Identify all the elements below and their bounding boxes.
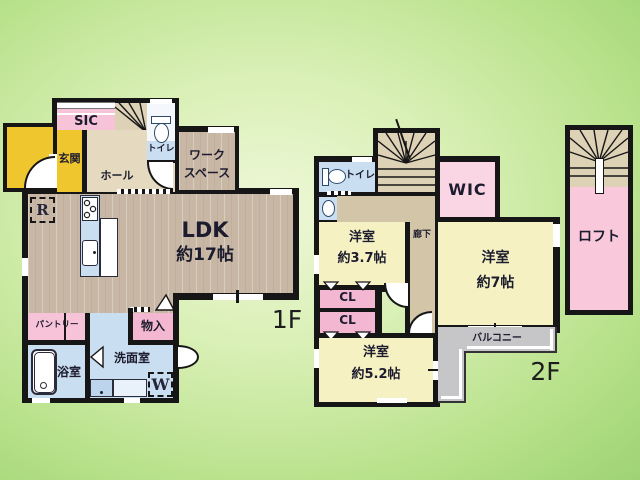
floorplan-image: SIC トイレ 玄関 ホール ワーク スペース LDK 約17帖 R bbox=[0, 0, 640, 480]
closet-1-label: CL bbox=[320, 291, 375, 304]
fridge-space: R bbox=[30, 197, 55, 223]
storage-label: 物入 bbox=[131, 320, 175, 333]
bathtub-drain-icon bbox=[40, 382, 47, 389]
room7-label-1: 洋室 bbox=[438, 251, 553, 266]
ldk-floor-left bbox=[28, 290, 173, 313]
ldk-window-tick bbox=[236, 290, 239, 303]
room37-window-left bbox=[314, 255, 319, 274]
washer-space: W bbox=[148, 372, 173, 397]
pantry-label: パントリー bbox=[26, 321, 88, 330]
room7-label-2: 約7帖 bbox=[438, 276, 553, 291]
room52-label-2: 約5.2帖 bbox=[319, 368, 433, 382]
room52-window-left bbox=[314, 349, 319, 368]
washroom-ext-door-arc bbox=[178, 345, 199, 369]
bathroom-label: 浴室 bbox=[51, 366, 87, 379]
room52-label-1: 洋室 bbox=[319, 346, 433, 360]
ldk-label-2: 約17帖 bbox=[150, 246, 260, 265]
toilet-1f-window bbox=[150, 99, 172, 104]
balcony-rail-line-3 bbox=[464, 351, 466, 403]
kitchen-faucet-icon bbox=[93, 251, 96, 254]
room52-window-bottom bbox=[377, 398, 407, 403]
ldk-window-left bbox=[22, 258, 28, 276]
corridor-label: 廊下 bbox=[407, 231, 437, 241]
loft-stairs-rail bbox=[595, 158, 604, 194]
floor2-label: 2F bbox=[518, 358, 573, 386]
bathroom-door-wedge bbox=[90, 346, 105, 368]
washbasin-icon bbox=[322, 200, 335, 217]
ldk-label-1: LDK bbox=[150, 219, 260, 242]
toilet-2f-threshold bbox=[327, 191, 351, 195]
loft-floor bbox=[570, 187, 628, 310]
toilet-1f-bowl-icon bbox=[154, 123, 169, 143]
washroom-label: 洗面室 bbox=[106, 352, 158, 365]
vanity-faucet-icon bbox=[100, 391, 103, 394]
balcony-rail-white-4 bbox=[441, 396, 462, 399]
balcony-rail-white-2 bbox=[467, 346, 553, 349]
genkan-label: 玄関 bbox=[56, 153, 83, 165]
balcony-rail-line-1 bbox=[555, 327, 557, 353]
toilet-2f-label: トイレ bbox=[344, 170, 376, 181]
ldk-window-topright bbox=[270, 189, 292, 195]
wic-label: WIC bbox=[440, 181, 495, 199]
loft-label: ロフト bbox=[570, 230, 628, 245]
room7-floor bbox=[438, 222, 553, 325]
sic-shelf bbox=[57, 102, 115, 109]
sic-label: SIC bbox=[57, 115, 115, 129]
room37-door-arc bbox=[384, 283, 408, 308]
balcony-rail-white-3 bbox=[459, 349, 462, 397]
storage-bottom-wall bbox=[128, 340, 179, 345]
toilet-1f-label: トイレ bbox=[147, 145, 175, 155]
washer-label: W bbox=[152, 375, 170, 394]
fridge-label: R bbox=[36, 201, 48, 219]
washroom-counter bbox=[113, 379, 147, 397]
room7-window-right bbox=[553, 224, 560, 247]
washroom-window bbox=[124, 398, 140, 403]
toilet-2f-window bbox=[352, 157, 372, 162]
kitchen-island-counter bbox=[100, 218, 118, 277]
washroom-opening bbox=[130, 307, 150, 312]
room37-label-1: 洋室 bbox=[319, 231, 405, 245]
balcony-rail-line-4 bbox=[438, 401, 466, 403]
stairs-2f-treads bbox=[378, 133, 435, 192]
balcony-rail-line-2 bbox=[466, 351, 557, 353]
vanity-cabinet-icon bbox=[90, 379, 113, 397]
balcony-label: バルコニー bbox=[466, 333, 528, 344]
hall-label: ホール bbox=[87, 170, 147, 182]
closet-2-label: CL bbox=[320, 314, 375, 327]
stove-burners-icon bbox=[82, 197, 98, 221]
workspace-label-1: ワーク bbox=[179, 149, 235, 162]
washroom-door-wedge bbox=[155, 295, 175, 312]
bathroom-window bbox=[32, 398, 50, 403]
closet-1-folding-door-icon bbox=[320, 282, 376, 291]
room37-label-2: 約3.7帖 bbox=[319, 252, 405, 266]
floor1-label: 1F bbox=[262, 306, 312, 334]
workspace-label-2: スペース bbox=[179, 167, 235, 180]
ldk-floor bbox=[28, 194, 293, 293]
workspace-window bbox=[208, 127, 234, 133]
